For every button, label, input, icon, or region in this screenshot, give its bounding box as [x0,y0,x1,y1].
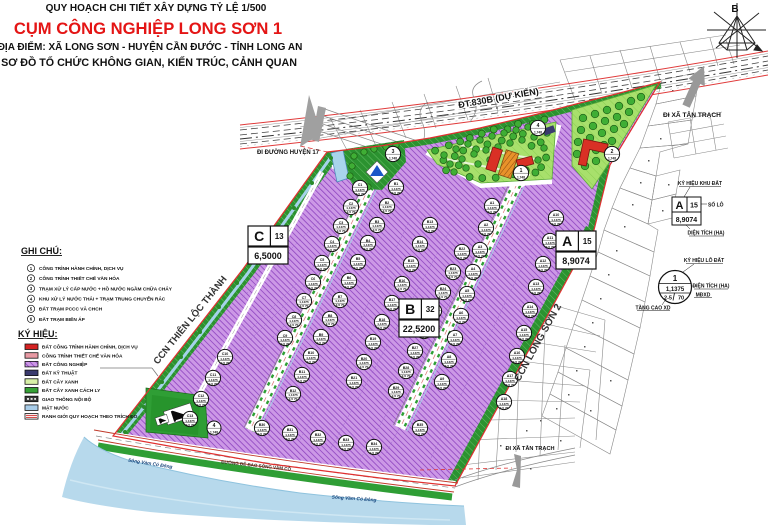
svg-text:2-5 70: 2-5 70 [209,382,218,386]
svg-text:2-5 70: 2-5 70 [439,295,448,299]
svg-text:B11: B11 [299,370,305,374]
svg-text:2-5 70: 2-5 70 [402,374,411,378]
svg-text:A: A [676,200,684,212]
svg-text:2-5 70: 2-5 70 [469,276,478,280]
svg-text:TRẠM XỬ LÝ CẤP NƯỚC + HỒ NƯỚC: TRẠM XỬ LÝ CẤP NƯỚC + HỒ NƯỚC NGẦM CHỮA … [39,284,173,292]
svg-text:2-5 70: 2-5 70 [336,303,345,307]
svg-text:A12: A12 [540,259,547,263]
svg-text:ĐẤT KỸ THUẬT: ĐẤT KỸ THUẬT [42,370,78,377]
svg-text:1,748: 1,748 [517,175,525,179]
svg-text:8,9074: 8,9074 [676,217,698,224]
svg-text:2: 2 [30,276,33,281]
svg-text:A9: A9 [440,377,445,381]
svg-text:2-5 70: 2-5 70 [360,365,369,369]
svg-text:C6: C6 [311,277,316,281]
svg-text:1,748: 1,748 [389,156,397,160]
svg-text:2-5 70: 2-5 70 [378,326,387,330]
svg-text:2-5 70: 2-5 70 [281,342,290,346]
svg-text:2-5 70: 2-5 70 [350,385,359,389]
svg-text:2-5 70: 2-5 70 [407,268,416,272]
svg-text:C5: C5 [320,258,325,262]
svg-text:C13: C13 [187,414,194,418]
svg-text:2-5 70: 2-5 70 [438,386,447,390]
svg-text:6: 6 [30,317,33,322]
svg-text:2-5 70: 2-5 70 [354,266,363,270]
svg-text:2-5 70: 2-5 70 [197,403,206,407]
svg-text:2-5 70: 2-5 70 [328,248,337,252]
svg-text:B5: B5 [356,257,361,261]
svg-text:B31: B31 [287,428,294,432]
svg-text:B30: B30 [259,423,266,427]
svg-text:2-5 70: 2-5 70 [300,304,309,308]
svg-text:2-5 70: 2-5 70 [520,337,529,341]
svg-text:1,1375: 1,1375 [666,287,685,293]
svg-text:ĐẤT TRẠM BIẾN ÁP: ĐẤT TRẠM BIẾN ÁP [39,316,86,323]
svg-text:B6: B6 [347,276,352,280]
svg-text:A5: A5 [465,289,470,293]
svg-text:2-5 70: 2-5 70 [317,341,326,345]
svg-text:2-5 70: 2-5 70 [416,248,425,252]
svg-text:15: 15 [690,203,698,210]
svg-text:2-5 70: 2-5 70 [373,228,382,232]
svg-text:ĐẤT TRẠM PCCC VÀ CHCH: ĐẤT TRẠM PCCC VÀ CHCH [39,306,103,313]
svg-text:DIỆN TÍCH (HA): DIỆN TÍCH (HA) [688,229,725,237]
svg-text:2-5 70: 2-5 70 [307,360,316,364]
svg-text:CÔNG TRÌNH HÀNH CHÍNH, DỊCH VỤ: CÔNG TRÌNH HÀNH CHÍNH, DỊCH VỤ [39,264,124,272]
svg-text:2-5 70: 2-5 70 [369,346,378,350]
svg-text:2-5 70: 2-5 70 [526,314,535,318]
svg-text:1,748: 1,748 [608,156,616,160]
svg-text:2-5 70: 2-5 70 [552,222,561,226]
svg-text:2-5 70: 2-5 70 [392,394,401,398]
svg-text:2-5 70: 2-5 70 [356,192,365,196]
svg-text:MẶT NƯỚC: MẶT NƯỚC [42,404,69,412]
svg-text:B: B [731,4,738,15]
svg-text:2-5 70: 2-5 70 [364,247,373,251]
svg-text:2-5 70: 2-5 70 [370,451,379,455]
svg-text:A13: A13 [533,282,540,286]
svg-text:2-5 70: 2-5 70 [546,245,555,249]
svg-text:2-5 70: 2-5 70 [449,275,458,279]
svg-text:A10: A10 [553,213,560,217]
svg-text:C12: C12 [198,394,205,398]
svg-text:2-5 70: 2-5 70 [398,287,407,291]
svg-text:2-5 70: 2-5 70 [342,447,351,451]
svg-text:1: 1 [673,274,678,283]
svg-text:B32: B32 [315,433,322,437]
svg-text:A4: A4 [471,267,476,271]
svg-text:2-5 70: 2-5 70 [318,267,327,271]
svg-text:2-5 70: 2-5 70 [445,364,454,368]
svg-text:1,748: 1,748 [534,130,542,134]
svg-text:ĐẤT CÂY XANH: ĐẤT CÂY XANH [42,378,79,385]
svg-text:2-5 70: 2-5 70 [290,323,299,327]
svg-text:2-5 70: 2-5 70 [411,355,420,359]
svg-text:2-5 70: 2-5 70 [326,322,335,326]
svg-text:DIỆN TÍCH (HA): DIỆN TÍCH (HA) [693,282,730,290]
svg-text:1: 1 [30,266,33,271]
svg-text:4: 4 [30,296,33,301]
svg-text:A2: A2 [484,223,489,227]
svg-text:KÝ HIỆU:: KÝ HIỆU: [18,328,58,339]
svg-text:B15: B15 [408,259,415,263]
svg-text:6,5000: 6,5000 [254,251,282,261]
svg-text:2-5 70: 2-5 70 [337,229,346,233]
svg-text:2-5 70: 2-5 70 [388,307,397,311]
svg-text:A15: A15 [521,328,528,332]
svg-text:B1: B1 [394,182,399,186]
svg-text:A8: A8 [447,355,452,359]
svg-text:B33: B33 [343,438,350,442]
svg-text:2-5 70: 2-5 70 [500,406,509,410]
svg-text:2-5 70: 2-5 70 [309,286,318,290]
svg-text:ĐI XÃ TÂN TRẠCH: ĐI XÃ TÂN TRẠCH [663,110,721,119]
svg-text:1,748: 1,748 [210,430,218,434]
svg-text:SƠ ĐỒ TỔ CHỨC KHÔNG GIAN, KIẾN: SƠ ĐỒ TỔ CHỨC KHÔNG GIAN, KIẾN TRÚC, CẢN… [1,56,297,69]
svg-text:2-5 70: 2-5 70 [482,232,491,236]
svg-text:A1: A1 [490,201,495,205]
svg-text:2-5 70: 2-5 70 [532,291,541,295]
svg-text:RANH GIỚI QUY HOẠCH THEO TRÍCH: RANH GIỚI QUY HOẠCH THEO TRÍCH ĐO [42,412,138,420]
svg-text:KÝ HIỆU KHU ĐẤT: KÝ HIỆU KHU ĐẤT [678,179,722,187]
svg-text:A16: A16 [514,351,521,355]
svg-text:8,9074: 8,9074 [562,256,590,266]
svg-text:2-5 70: 2-5 70 [539,268,548,272]
svg-text:A11: A11 [547,236,553,240]
svg-text:2-5 70: 2-5 70 [289,397,298,401]
svg-text:2-5 70: 2-5 70 [458,256,467,260]
svg-text:ĐẤT CÔNG TRÌNH HÀNH CHÍNH, DỊC: ĐẤT CÔNG TRÌNH HÀNH CHÍNH, DỊCH VỤ [42,343,138,351]
svg-text:B22: B22 [459,247,466,251]
svg-text:2-5 70: 2-5 70 [258,432,267,436]
svg-text:C10: C10 [222,352,229,356]
svg-text:2-5 70: 2-5 70 [345,285,354,289]
svg-text:2-5 70: 2-5 70 [463,298,472,302]
svg-text:C11: C11 [210,373,216,377]
svg-text:5: 5 [30,306,33,311]
svg-text:B: B [405,301,415,317]
svg-text:A14: A14 [527,305,534,309]
svg-text:2-5 70: 2-5 70 [314,442,323,446]
svg-text:22,5200: 22,5200 [403,324,436,334]
svg-text:2-5 70: 2-5 70 [186,423,195,427]
svg-text:70: 70 [678,296,684,302]
svg-text:GHI CHÚ:: GHI CHÚ: [21,245,62,256]
svg-text:2-5 70: 2-5 70 [506,383,515,387]
svg-text:A18: A18 [501,397,508,401]
svg-text:2-5 70: 2-5 70 [488,210,497,214]
svg-text:2-5 70: 2-5 70 [392,191,401,195]
svg-text:KÝ HIỆU LÔ ĐẤT: KÝ HIỆU LÔ ĐẤT [684,256,724,264]
svg-text:B10: B10 [308,351,315,355]
svg-text:2-5 70: 2-5 70 [476,254,485,258]
svg-text:CỤM CÔNG NGHIỆP LONG SƠN 1: CỤM CÔNG NGHIỆP LONG SƠN 1 [14,19,282,38]
svg-text:B34: B34 [371,442,378,446]
svg-text:A7: A7 [453,333,458,337]
svg-text:2-5 70: 2-5 70 [426,229,435,233]
svg-text:C: C [254,228,264,244]
svg-text:A: A [562,233,572,249]
svg-text:2-5 70: 2-5 70 [286,437,295,441]
svg-text:A3: A3 [478,245,483,249]
svg-text:2-5 70: 2-5 70 [451,342,460,346]
svg-text:QUY HOẠCH CHI TIẾT XÂY DỰNG TỶ: QUY HOẠCH CHI TIẾT XÂY DỰNG TỶ LỆ 1/500 [46,1,267,14]
svg-text:2-5 70: 2-5 70 [221,361,230,365]
svg-text:13: 13 [275,232,284,241]
svg-text:B27: B27 [412,346,419,350]
svg-text:15: 15 [583,237,592,246]
svg-text:KHU XỬ LÝ NƯỚC THẢI + TRẠM TRU: KHU XỬ LÝ NƯỚC THẢI + TRẠM TRUNG CHUYỂN … [39,294,166,302]
svg-text:ĐI XÃ TÂN TRẠCH: ĐI XÃ TÂN TRẠCH [505,445,554,452]
svg-text:CÔNG TRÌNH THIẾT CHẾ VĂN HÓA: CÔNG TRÌNH THIẾT CHẾ VĂN HÓA [42,351,123,359]
svg-text:B19: B19 [370,337,377,341]
svg-text:B13: B13 [427,220,434,224]
svg-text:B35: B35 [417,423,424,427]
svg-text:C1: C1 [358,183,363,187]
svg-text:ĐỊA ĐIỂM: XÃ LONG SƠN - HUYỆN: ĐỊA ĐIỂM: XÃ LONG SƠN - HUYỆN CẦN ĐƯỚC -… [0,40,302,53]
svg-text:GIAO THÔNG NỘI BỘ: GIAO THÔNG NỘI BỘ [42,395,92,403]
svg-text:ĐI ĐƯỜNG HUYỆN 17: ĐI ĐƯỜNG HUYỆN 17 [257,148,320,156]
svg-text:2-5 70: 2-5 70 [416,432,425,436]
svg-text:2-5 70: 2-5 70 [298,379,307,383]
svg-text:ĐẤT CÔNG NGHIỆP: ĐẤT CÔNG NGHIỆP [42,360,88,368]
svg-text:A6: A6 [459,311,464,315]
svg-text:B17: B17 [389,298,396,302]
svg-text:2-5 70: 2-5 70 [383,209,392,213]
svg-text:32: 32 [426,305,435,314]
svg-text:ĐẤT CÂY XANH CÁCH LY: ĐẤT CÂY XANH CÁCH LY [42,387,101,394]
svg-text:2-5 70: 2-5 70 [347,210,356,214]
svg-text:B21: B21 [351,376,358,380]
svg-text:2-5 70: 2-5 70 [457,320,466,324]
svg-text:SỐ LÔ: SỐ LÔ [708,201,724,209]
svg-text:3: 3 [30,286,33,291]
svg-text:CÔNG TRÌNH THIẾT CHẾ VĂN HÓA: CÔNG TRÌNH THIẾT CHẾ VĂN HÓA [39,274,120,282]
